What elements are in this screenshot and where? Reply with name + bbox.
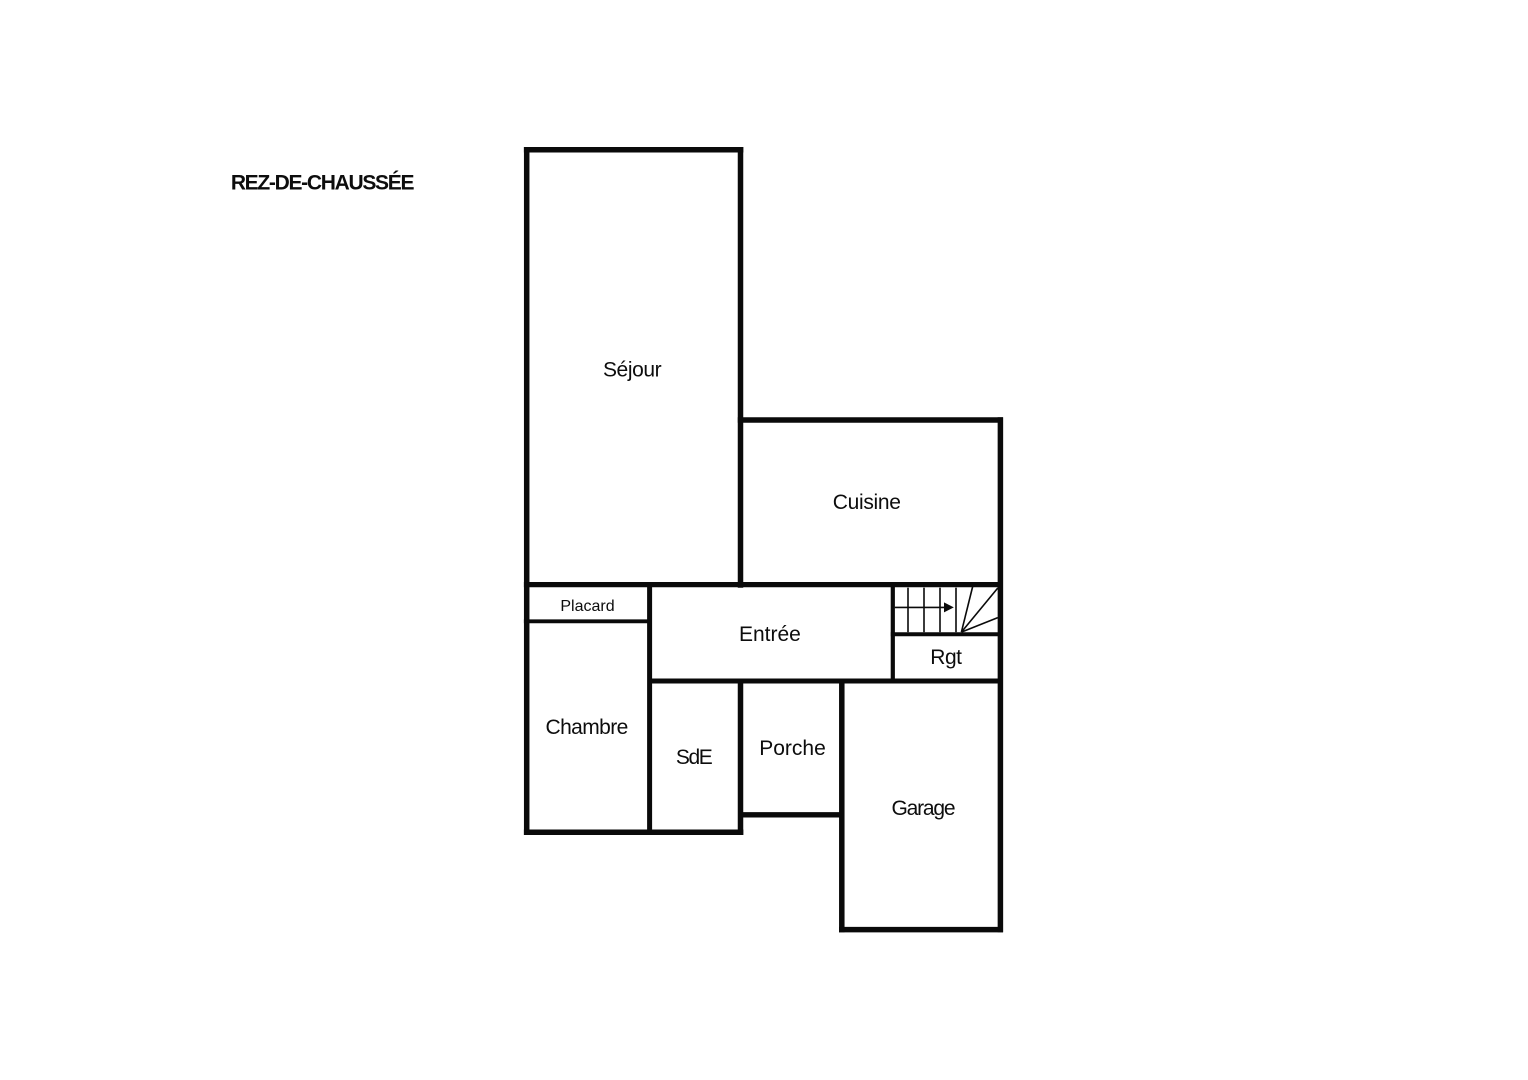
svg-text:Cuisine: Cuisine	[833, 491, 901, 514]
svg-text:SdE: SdE	[676, 746, 713, 769]
svg-text:Porche: Porche	[759, 737, 826, 760]
svg-text:Placard: Placard	[560, 598, 614, 615]
svg-text:Séjour: Séjour	[603, 359, 662, 382]
svg-text:Chambre: Chambre	[546, 716, 628, 739]
svg-text:REZ-DE-CHAUSSÉE: REZ-DE-CHAUSSÉE	[231, 172, 415, 195]
svg-text:Rgt: Rgt	[930, 646, 962, 669]
svg-text:Garage: Garage	[891, 797, 954, 820]
svg-text:Entrée: Entrée	[739, 623, 801, 646]
